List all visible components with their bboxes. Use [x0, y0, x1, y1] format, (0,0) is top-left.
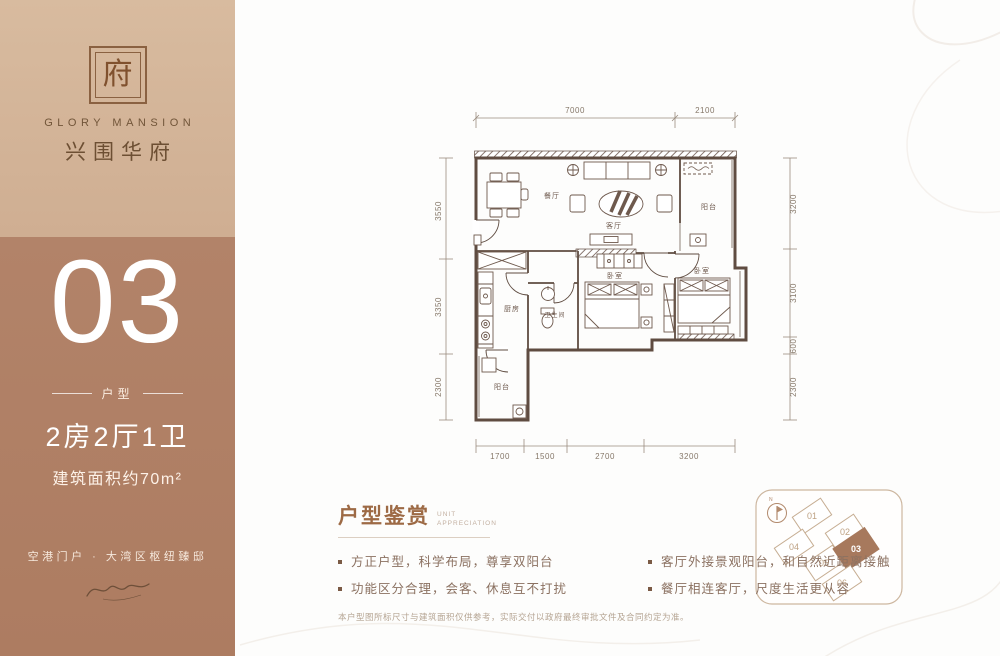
appreciation-section: 户型鉴赏 UNIT APPRECIATION 方正户型，科学布局，尊享双阳台 功…: [338, 500, 938, 623]
floorplan-drawing: 7000 2100 3550 3350 2300 3200 3100 600 2…: [428, 88, 908, 473]
dim-right-600: 600: [789, 339, 798, 354]
bed-second: [585, 282, 639, 328]
bullet-item: 方正户型，科学布局，尊享双阳台: [338, 549, 648, 576]
dim-left-3350: 3350: [434, 297, 443, 317]
bullet-list-left: 方正户型，科学布局，尊享双阳台 功能区分合理，会客、休息互不打扰: [338, 549, 648, 603]
room-label-bathroom: 卫生间: [544, 311, 565, 319]
unit-panel: 03 户型 2房2厅1卫 建筑面积约70m² 空港门户 · 大湾区枢纽臻邸: [0, 237, 235, 656]
bullet-item: 餐厅相连客厅，尺度生活更从容: [648, 576, 891, 603]
dim-right-3100: 3100: [789, 283, 798, 303]
bullet-item: 功能区分合理，会客、休息互不打扰: [338, 576, 648, 603]
brochure-page: { "brand": { "seal_char": "府", "name_en"…: [0, 0, 1000, 656]
washing-machine: [513, 405, 526, 418]
brand-name-cn: 兴围华府: [0, 136, 235, 166]
bullet-marker: [648, 587, 652, 591]
tv-cabinet: [590, 234, 632, 245]
brand-seal-logo: 府: [89, 46, 147, 104]
bullet-list-right: 客厅外接景观阳台，和自然近距离接触 餐厅相连客厅，尺度生活更从容: [648, 549, 891, 603]
dim-top-2100: 2100: [695, 106, 715, 115]
balcony-fixture: [482, 358, 496, 372]
dim-top-7000: 7000: [565, 106, 585, 115]
room-label-living: 客厅: [606, 221, 622, 230]
armchair: [657, 195, 672, 212]
dim-bottom-3200: 3200: [679, 452, 699, 461]
room-label-bedroom-second: 卧室: [607, 271, 623, 280]
dining-table: [474, 173, 528, 245]
dim-right-2300: 2300: [789, 377, 798, 397]
unit-type-label: 户型: [0, 385, 235, 402]
dim-left-3550: 3550: [434, 201, 443, 221]
room-label-kitchen: 厨房: [504, 304, 520, 313]
bed-main: [678, 278, 730, 323]
title-underline: [338, 537, 490, 538]
dim-bottom-1500: 1500: [535, 452, 555, 461]
signature-script: [81, 578, 155, 604]
unit-number: 03: [0, 243, 235, 361]
section-title: 户型鉴赏: [338, 500, 430, 530]
armchair: [570, 195, 585, 212]
brand-name-en: GLORY MANSION: [0, 117, 235, 129]
rug: [599, 191, 643, 217]
seal-character: 府: [103, 60, 133, 90]
wardrobe-second: [597, 254, 642, 268]
kitchen-closet: [478, 252, 526, 269]
unit-area: 建筑面积约70m²: [0, 465, 235, 489]
sofa: [584, 162, 650, 179]
bullet-item: 客厅外接景观阳台，和自然近距离接触: [648, 549, 891, 576]
divider-line: [143, 393, 183, 394]
sidebar: 府 GLORY MANSION 兴围华府 03 户型 2房2厅1卫 建筑面积约7…: [0, 0, 235, 656]
kitchen-counter: [478, 272, 493, 348]
lamp: [644, 320, 649, 325]
room-label-dining: 餐厅: [544, 191, 560, 200]
section-subtitle: UNIT APPRECIATION: [437, 511, 497, 530]
unit-layout: 2房2厅1卫: [0, 415, 235, 454]
dim-right-3200: 3200: [789, 194, 798, 214]
ac-unit: [684, 163, 712, 174]
furniture: [474, 162, 730, 418]
dresser: [678, 326, 728, 334]
disclaimer-text: 本户型图所标尺寸与建筑面积仅供参考，实际交付以政府最终审批文件及合同约定为准。: [338, 611, 938, 623]
bullet-marker: [648, 560, 652, 564]
bathroom-fixtures: [541, 286, 555, 328]
project-tagline: 空港门户 · 大湾区枢纽臻邸: [0, 548, 235, 564]
divider-line: [52, 393, 92, 394]
lamp: [644, 287, 649, 292]
dim-left-2300: 2300: [434, 377, 443, 397]
bullet-marker: [338, 560, 342, 564]
dim-bottom-2700: 2700: [595, 452, 615, 461]
wardrobe-divider: [664, 284, 674, 332]
brand-panel: 府 GLORY MANSION 兴围华府: [0, 0, 235, 237]
room-label-balcony-bottom: 阳台: [494, 382, 510, 391]
room-label-bedroom-main: 卧室: [694, 266, 710, 275]
bullet-marker: [338, 587, 342, 591]
balcony-table: [690, 234, 706, 246]
dim-bottom-1700: 1700: [490, 452, 510, 461]
room-label-balcony-top: 阳台: [701, 202, 717, 211]
